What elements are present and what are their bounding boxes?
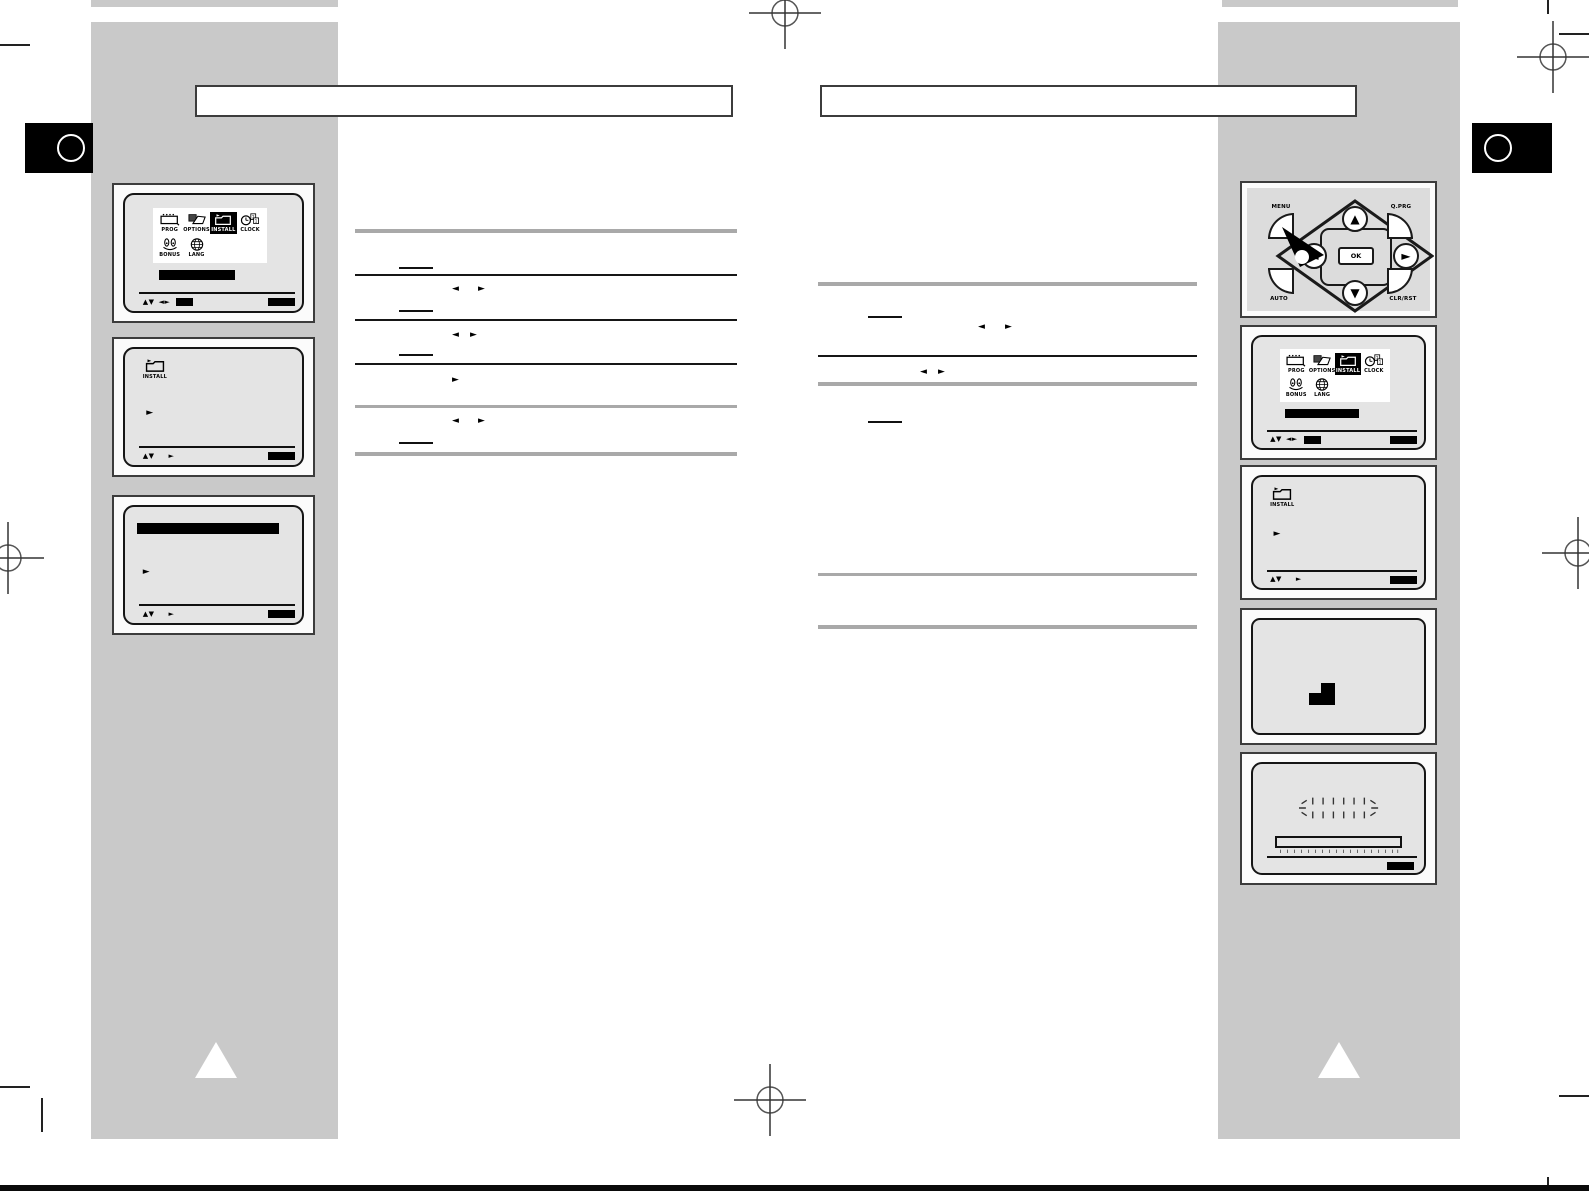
registration-mark-icon — [1542, 517, 1589, 589]
screen-divider-line — [139, 292, 295, 294]
right-page-triangle — [1318, 1042, 1360, 1078]
left-arrow-button-icon: ◄ — [452, 331, 459, 340]
menu-icon-prog: PROG — [1283, 353, 1309, 375]
word-underline — [399, 310, 433, 312]
screenshot-install-menu: INSTALL ► ▲▼ ► — [1240, 465, 1437, 600]
word-underline — [399, 442, 433, 444]
install-icon-label: INSTALL — [143, 374, 167, 380]
menu-icon-lang: LANG — [183, 237, 210, 259]
prog-icon — [1285, 354, 1307, 367]
screenshot-main-menu: PROG OPTIONS INSTALL — [112, 183, 315, 323]
selected-item-bar — [1285, 409, 1359, 418]
menu-icon-bonus: BONUS — [1283, 377, 1309, 399]
remote-pad: MENU Q.PRG AUTO CLR/RST ▲ ▼ ◄ ► OK — [1247, 188, 1430, 311]
word-underline — [399, 267, 433, 269]
install-icon — [143, 358, 167, 373]
left-page-tab-ring — [57, 134, 85, 162]
word-underline — [868, 316, 902, 318]
trim-mark — [41, 1098, 43, 1132]
right-arrow-button-icon: ► — [1005, 323, 1012, 332]
menu-icon-label: LANG — [1314, 392, 1330, 398]
menu-cursor-icon: ► — [1274, 530, 1281, 539]
menu-icon-install-selected: INSTALL — [210, 212, 237, 234]
right-arrow-button-icon: ► — [478, 285, 485, 294]
menu-icon-label: CLOCK — [1364, 368, 1383, 374]
trim-mark — [1547, 0, 1549, 14]
menu-icon-label: PROG — [161, 227, 178, 233]
screen-title-bar — [137, 523, 279, 533]
screen-status-row: ▲▼ ► — [143, 452, 295, 460]
screen-divider-line — [139, 604, 295, 606]
right-page-tab — [1472, 123, 1552, 173]
menu-icon-bonus: BONUS — [156, 237, 183, 259]
status-black-box — [1304, 436, 1321, 444]
selected-item-bar — [159, 270, 235, 279]
menu-cursor-icon: ► — [143, 568, 150, 577]
bonus-icon — [159, 238, 181, 251]
section-separator — [818, 625, 1197, 629]
menu-icon-clock: 2 1 CLOCK — [1361, 353, 1387, 375]
updown-arrows-icon: ▲▼ — [1270, 436, 1282, 443]
left-page-title-box — [195, 85, 733, 117]
section-separator — [818, 282, 1197, 286]
menu-icon-panel: PROG OPTIONS INSTALL — [1280, 349, 1389, 402]
menu-icon-label: OPTIONS — [1309, 368, 1336, 374]
section-separator — [355, 229, 737, 233]
registration-mark-icon — [734, 1064, 806, 1136]
left-arrow-button-icon: ◄ — [452, 285, 459, 294]
install-icon — [1270, 486, 1294, 501]
status-black-box-right — [1387, 862, 1414, 870]
leftright-arrows-icon: ◄► — [1286, 436, 1298, 443]
updown-arrows-icon: ▲▼ — [143, 611, 155, 618]
registration-mark-icon — [749, 0, 821, 49]
install-corner-icon: INSTALL — [143, 358, 167, 380]
menu-icon-clock: 2 1 CLOCK — [237, 212, 264, 234]
left-page-tab — [25, 123, 93, 173]
menu-icon-empty — [210, 237, 237, 259]
menu-icon-label: OPTIONS — [183, 227, 210, 233]
screen-status-row: ▲▼ ► — [143, 610, 295, 618]
install-icon — [1337, 354, 1359, 367]
screenshot-main-menu: PROG OPTIONS INSTALL — [1240, 325, 1437, 460]
clock-icon: 2 1 — [239, 213, 261, 226]
lang-icon — [186, 238, 208, 251]
prog-icon — [159, 213, 181, 226]
registration-mark-icon — [1517, 21, 1589, 93]
step-separator — [355, 363, 737, 365]
screen-divider-line — [1267, 430, 1418, 432]
page-bottom-rule — [0, 1185, 1589, 1191]
menu-icon-install-selected: INSTALL — [1335, 353, 1361, 375]
manual-page-spread: PROG OPTIONS INSTALL — [0, 0, 1589, 1191]
remote-pad-figure: MENU Q.PRG AUTO CLR/RST ▲ ▼ ◄ ► OK — [1240, 181, 1437, 318]
status-black-box-right — [1390, 436, 1417, 444]
lang-icon — [1311, 378, 1333, 391]
step-separator — [355, 274, 737, 276]
left-arrow-button-icon: ◄ — [920, 368, 927, 377]
menu-icon-label: LANG — [188, 252, 204, 258]
step-separator — [355, 405, 737, 408]
menu-icon-empty — [1335, 377, 1361, 399]
screenshot-sub-menu: ► ▲▼ ► — [112, 495, 315, 635]
registration-mark-icon — [0, 522, 44, 594]
status-black-box — [176, 298, 193, 306]
leftright-arrows-icon: ◄► — [158, 299, 170, 306]
word-underline — [868, 421, 902, 423]
trim-mark — [1559, 1095, 1589, 1097]
menu-icon-options: OPTIONS — [1309, 353, 1335, 375]
screen-divider-line — [139, 446, 295, 448]
right-sidebar-top-strip — [1222, 0, 1458, 7]
section-separator — [355, 452, 737, 456]
status-black-box-right — [1390, 576, 1417, 584]
bonus-icon — [1285, 378, 1307, 391]
word-underline — [399, 354, 433, 356]
screen-status-row: ▲▼ ► — [1270, 576, 1417, 584]
svg-text:1: 1 — [255, 218, 258, 223]
step-separator — [818, 573, 1197, 576]
tv-screen: INSTALL ► ▲▼ ► — [1251, 475, 1426, 590]
menu-icon-empty — [1361, 377, 1387, 399]
osd-block — [1309, 693, 1335, 704]
channel-search-indicator-icon — [1299, 795, 1385, 821]
menu-icon-prog: PROG — [156, 212, 183, 234]
cursor-arrow-icon: ► — [168, 611, 174, 618]
right-arrow-button-icon: ► — [938, 368, 945, 377]
status-black-box-right — [268, 452, 295, 460]
screen-divider-line — [1267, 856, 1418, 858]
updown-arrows-icon: ▲▼ — [1270, 576, 1282, 583]
left-arrow-button-icon: ◄ — [978, 323, 985, 332]
trim-mark — [0, 1086, 30, 1088]
right-page-tab-ring — [1484, 134, 1512, 162]
menu-icon-options: OPTIONS — [183, 212, 210, 234]
options-icon — [186, 213, 208, 226]
left-sidebar-top-strip — [91, 0, 338, 7]
cursor-arrow-icon: ► — [1296, 576, 1302, 583]
menu-icon-lang: LANG — [1309, 377, 1335, 399]
cursor-arrow-icon: ► — [168, 453, 174, 460]
step-separator — [818, 355, 1197, 357]
screenshot-install-menu: INSTALL ► ▲▼ ► — [112, 337, 315, 477]
step-separator — [355, 319, 737, 321]
menu-cursor-icon: ► — [146, 409, 153, 418]
screen-status-row: ▲▼ ◄► — [1270, 436, 1417, 444]
right-arrow-button-icon: ► — [452, 376, 459, 385]
status-black-box-right — [268, 298, 295, 306]
tuning-progress-bar — [1275, 836, 1402, 848]
svg-text:1: 1 — [1379, 359, 1382, 364]
menu-icon-label: INSTALL — [1336, 368, 1360, 374]
tv-screen: INSTALL ► ▲▼ ► — [123, 347, 304, 467]
screenshot-blank-screen — [1240, 608, 1437, 745]
menu-icon-panel: PROG OPTIONS INSTALL — [153, 208, 266, 264]
install-icon-label: INSTALL — [1270, 502, 1294, 508]
section-separator — [818, 382, 1197, 386]
options-icon — [1311, 354, 1333, 367]
tv-screen: ► ▲▼ ► — [123, 505, 304, 625]
menu-icon-label: INSTALL — [211, 227, 235, 233]
progress-bar-ticks — [1277, 845, 1400, 853]
updown-arrows-icon: ▲▼ — [143, 299, 155, 306]
updown-arrows-icon: ▲▼ — [143, 453, 155, 460]
install-corner-icon: INSTALL — [1270, 486, 1294, 508]
menu-icon-label: CLOCK — [240, 227, 259, 233]
tv-screen: PROG OPTIONS INSTALL — [1251, 335, 1426, 450]
screen-divider-line — [1267, 570, 1418, 572]
right-arrow-button-icon: ► — [470, 331, 477, 340]
left-arrow-button-icon: ◄ — [452, 417, 459, 426]
status-black-box-right — [268, 610, 295, 618]
clock-icon: 2 1 — [1363, 354, 1385, 367]
trim-mark — [0, 44, 30, 46]
screen-status-row: ▲▼ ◄► — [143, 298, 295, 306]
tv-screen — [1251, 618, 1426, 735]
pointer-cursor-icon — [1247, 188, 1434, 315]
right-arrow-button-icon: ► — [478, 417, 485, 426]
tv-screen: PROG OPTIONS INSTALL — [123, 193, 304, 313]
menu-icon-label: BONUS — [159, 252, 180, 258]
menu-icon-label: BONUS — [1286, 392, 1307, 398]
menu-icon-label: PROG — [1288, 368, 1305, 374]
right-page-title-box — [820, 85, 1357, 117]
install-icon — [212, 213, 234, 226]
left-page-triangle — [195, 1042, 237, 1078]
menu-icon-empty — [237, 237, 264, 259]
tv-screen — [1251, 762, 1426, 875]
screenshot-autotune-screen — [1240, 752, 1437, 885]
